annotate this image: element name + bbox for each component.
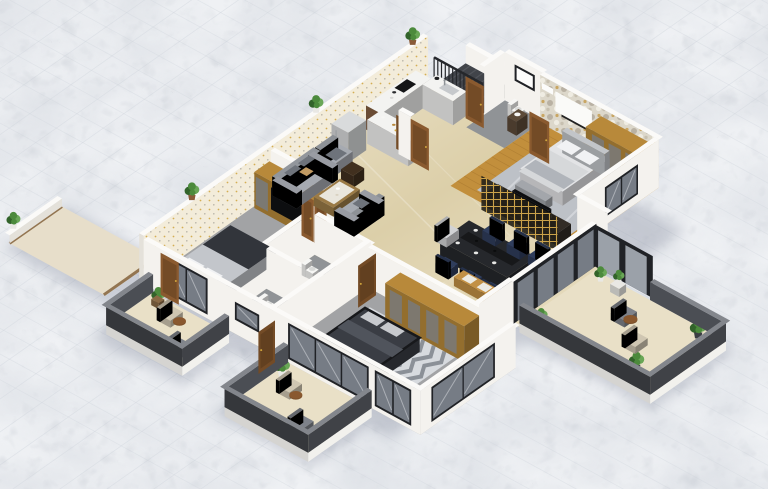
- floorplan-3d-render: [0, 0, 768, 489]
- floorplan-render-canvas: [0, 0, 768, 489]
